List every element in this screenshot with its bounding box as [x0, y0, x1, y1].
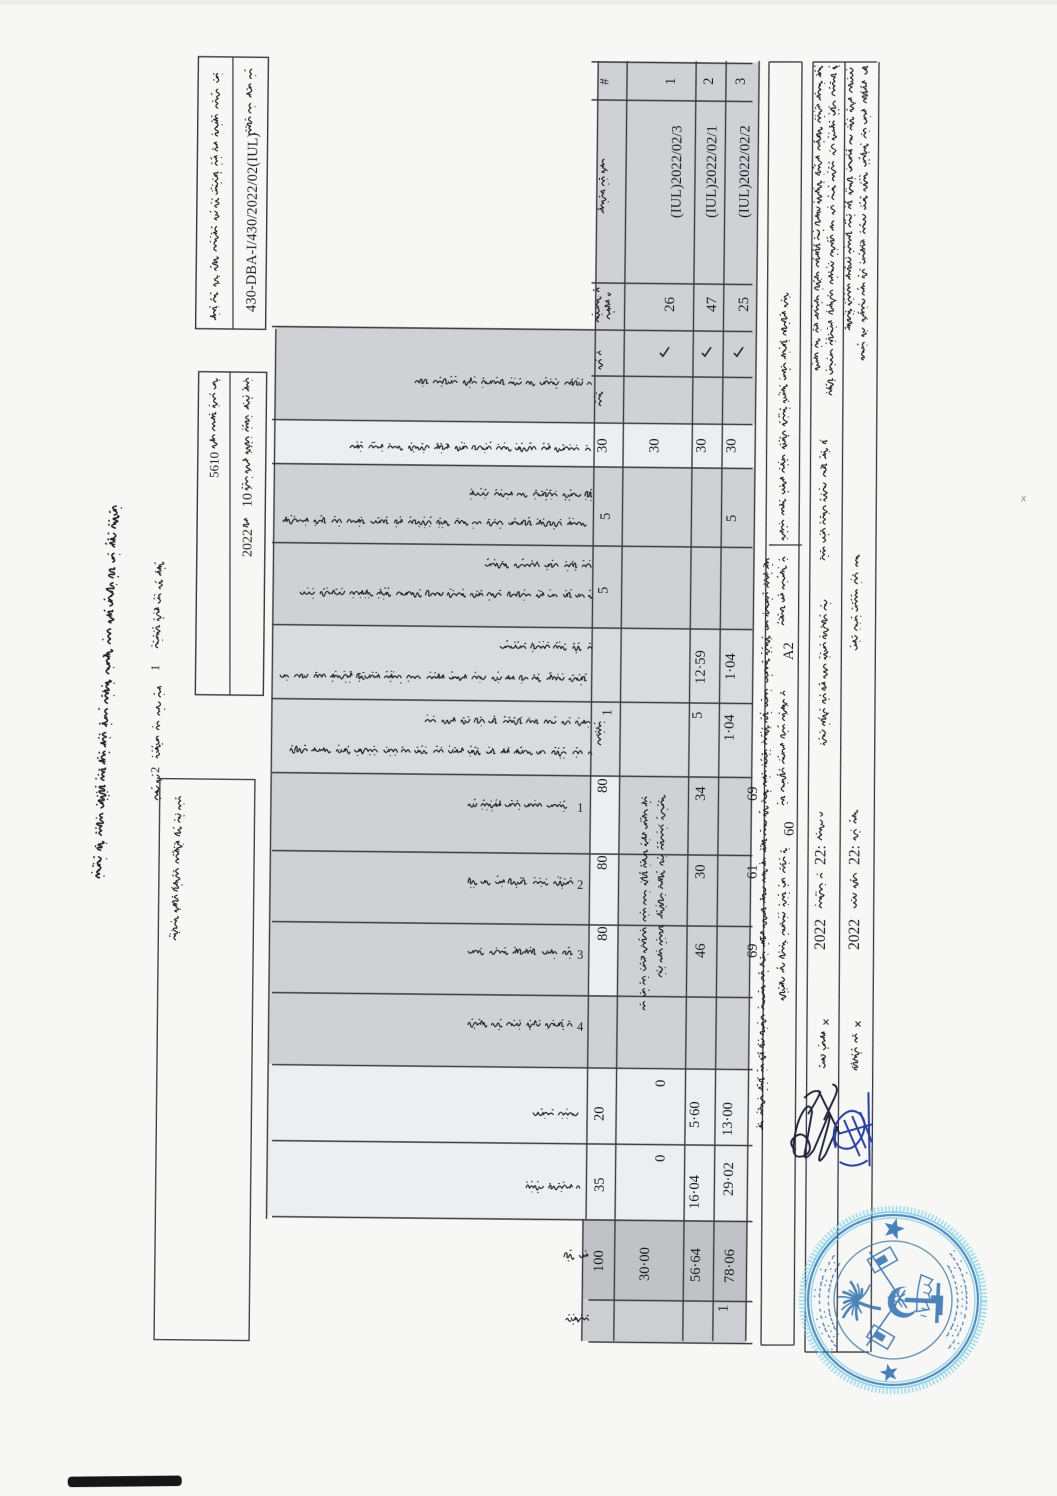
svg-text:56·64: 56·64: [688, 1247, 704, 1282]
svg-text:69: 69: [745, 943, 761, 958]
svg-text:5: 5: [724, 515, 740, 522]
svg-text:(IUL)2022/02/3: (IUL)2022/02/3: [669, 125, 686, 218]
svg-text:47: 47: [704, 296, 720, 312]
svg-text:5: 5: [690, 712, 706, 719]
svg-text:20: 20: [592, 1106, 608, 1121]
svg-text:430-DBA-I/430/2022/02(IUL): 430-DBA-I/430/2022/02(IUL): [244, 132, 262, 312]
svg-text:(IUL)2022/02/2: (IUL)2022/02/2: [737, 125, 754, 218]
svg-text:3: 3: [733, 78, 749, 85]
svg-text:2: 2: [577, 878, 583, 892]
svg-text:100: 100: [591, 1250, 607, 1272]
svg-text:2022: 2022: [241, 529, 256, 557]
svg-text:16·04: 16·04: [687, 1174, 703, 1209]
svg-text:4: 4: [577, 1020, 584, 1034]
svg-text:A2: A2: [781, 642, 797, 660]
svg-text:34: 34: [693, 786, 709, 801]
svg-text:22:: 22:: [846, 845, 863, 865]
svg-text:80: 80: [595, 855, 611, 870]
svg-text:x: x: [1021, 493, 1026, 504]
svg-text:60: 60: [782, 821, 798, 836]
svg-text:3: 3: [577, 948, 583, 962]
svg-text:5·60: 5·60: [687, 1101, 703, 1128]
svg-text:13·00: 13·00: [720, 1102, 736, 1136]
svg-text:2022: 2022: [846, 919, 863, 950]
svg-text:30: 30: [647, 438, 663, 453]
svg-text:#: #: [596, 78, 611, 85]
svg-text:30·00: 30·00: [637, 1247, 653, 1281]
svg-text:30: 30: [595, 438, 611, 453]
svg-text:5: 5: [598, 513, 614, 520]
svg-text:22:: 22:: [812, 845, 829, 865]
svg-text:10: 10: [241, 493, 256, 507]
svg-text:0: 0: [653, 1155, 669, 1162]
svg-text:2: 2: [701, 78, 717, 85]
svg-text:12·59: 12·59: [693, 650, 709, 684]
svg-text:1·04: 1·04: [722, 714, 738, 741]
svg-text:(IUL)2022/02/1: (IUL)2022/02/1: [704, 125, 721, 218]
svg-text:29·02: 29·02: [721, 1162, 737, 1196]
svg-text:78·06: 78·06: [722, 1249, 738, 1283]
svg-text:69: 69: [745, 786, 761, 801]
svg-text:1: 1: [663, 78, 679, 85]
svg-text:5610: 5610: [206, 452, 221, 478]
svg-text:46: 46: [693, 943, 709, 958]
svg-text:80: 80: [595, 926, 611, 941]
svg-text:80: 80: [595, 778, 611, 793]
svg-text:1: 1: [599, 709, 614, 716]
svg-text:30: 30: [694, 438, 710, 453]
svg-text:30: 30: [693, 864, 709, 879]
svg-text:2022: 2022: [812, 919, 829, 950]
svg-text:1: 1: [716, 1305, 732, 1312]
svg-text:30: 30: [724, 438, 740, 453]
svg-text:61: 61: [745, 864, 761, 879]
svg-text:5: 5: [596, 587, 612, 594]
svg-text:2: 2: [148, 766, 162, 773]
svg-text:1: 1: [577, 801, 583, 815]
svg-text:35: 35: [592, 1177, 608, 1192]
svg-text:26: 26: [662, 296, 678, 312]
svg-text:25: 25: [736, 297, 752, 312]
svg-text:1: 1: [148, 664, 162, 671]
svg-text:0: 0: [653, 1080, 669, 1087]
svg-text:1·04: 1·04: [723, 653, 739, 680]
